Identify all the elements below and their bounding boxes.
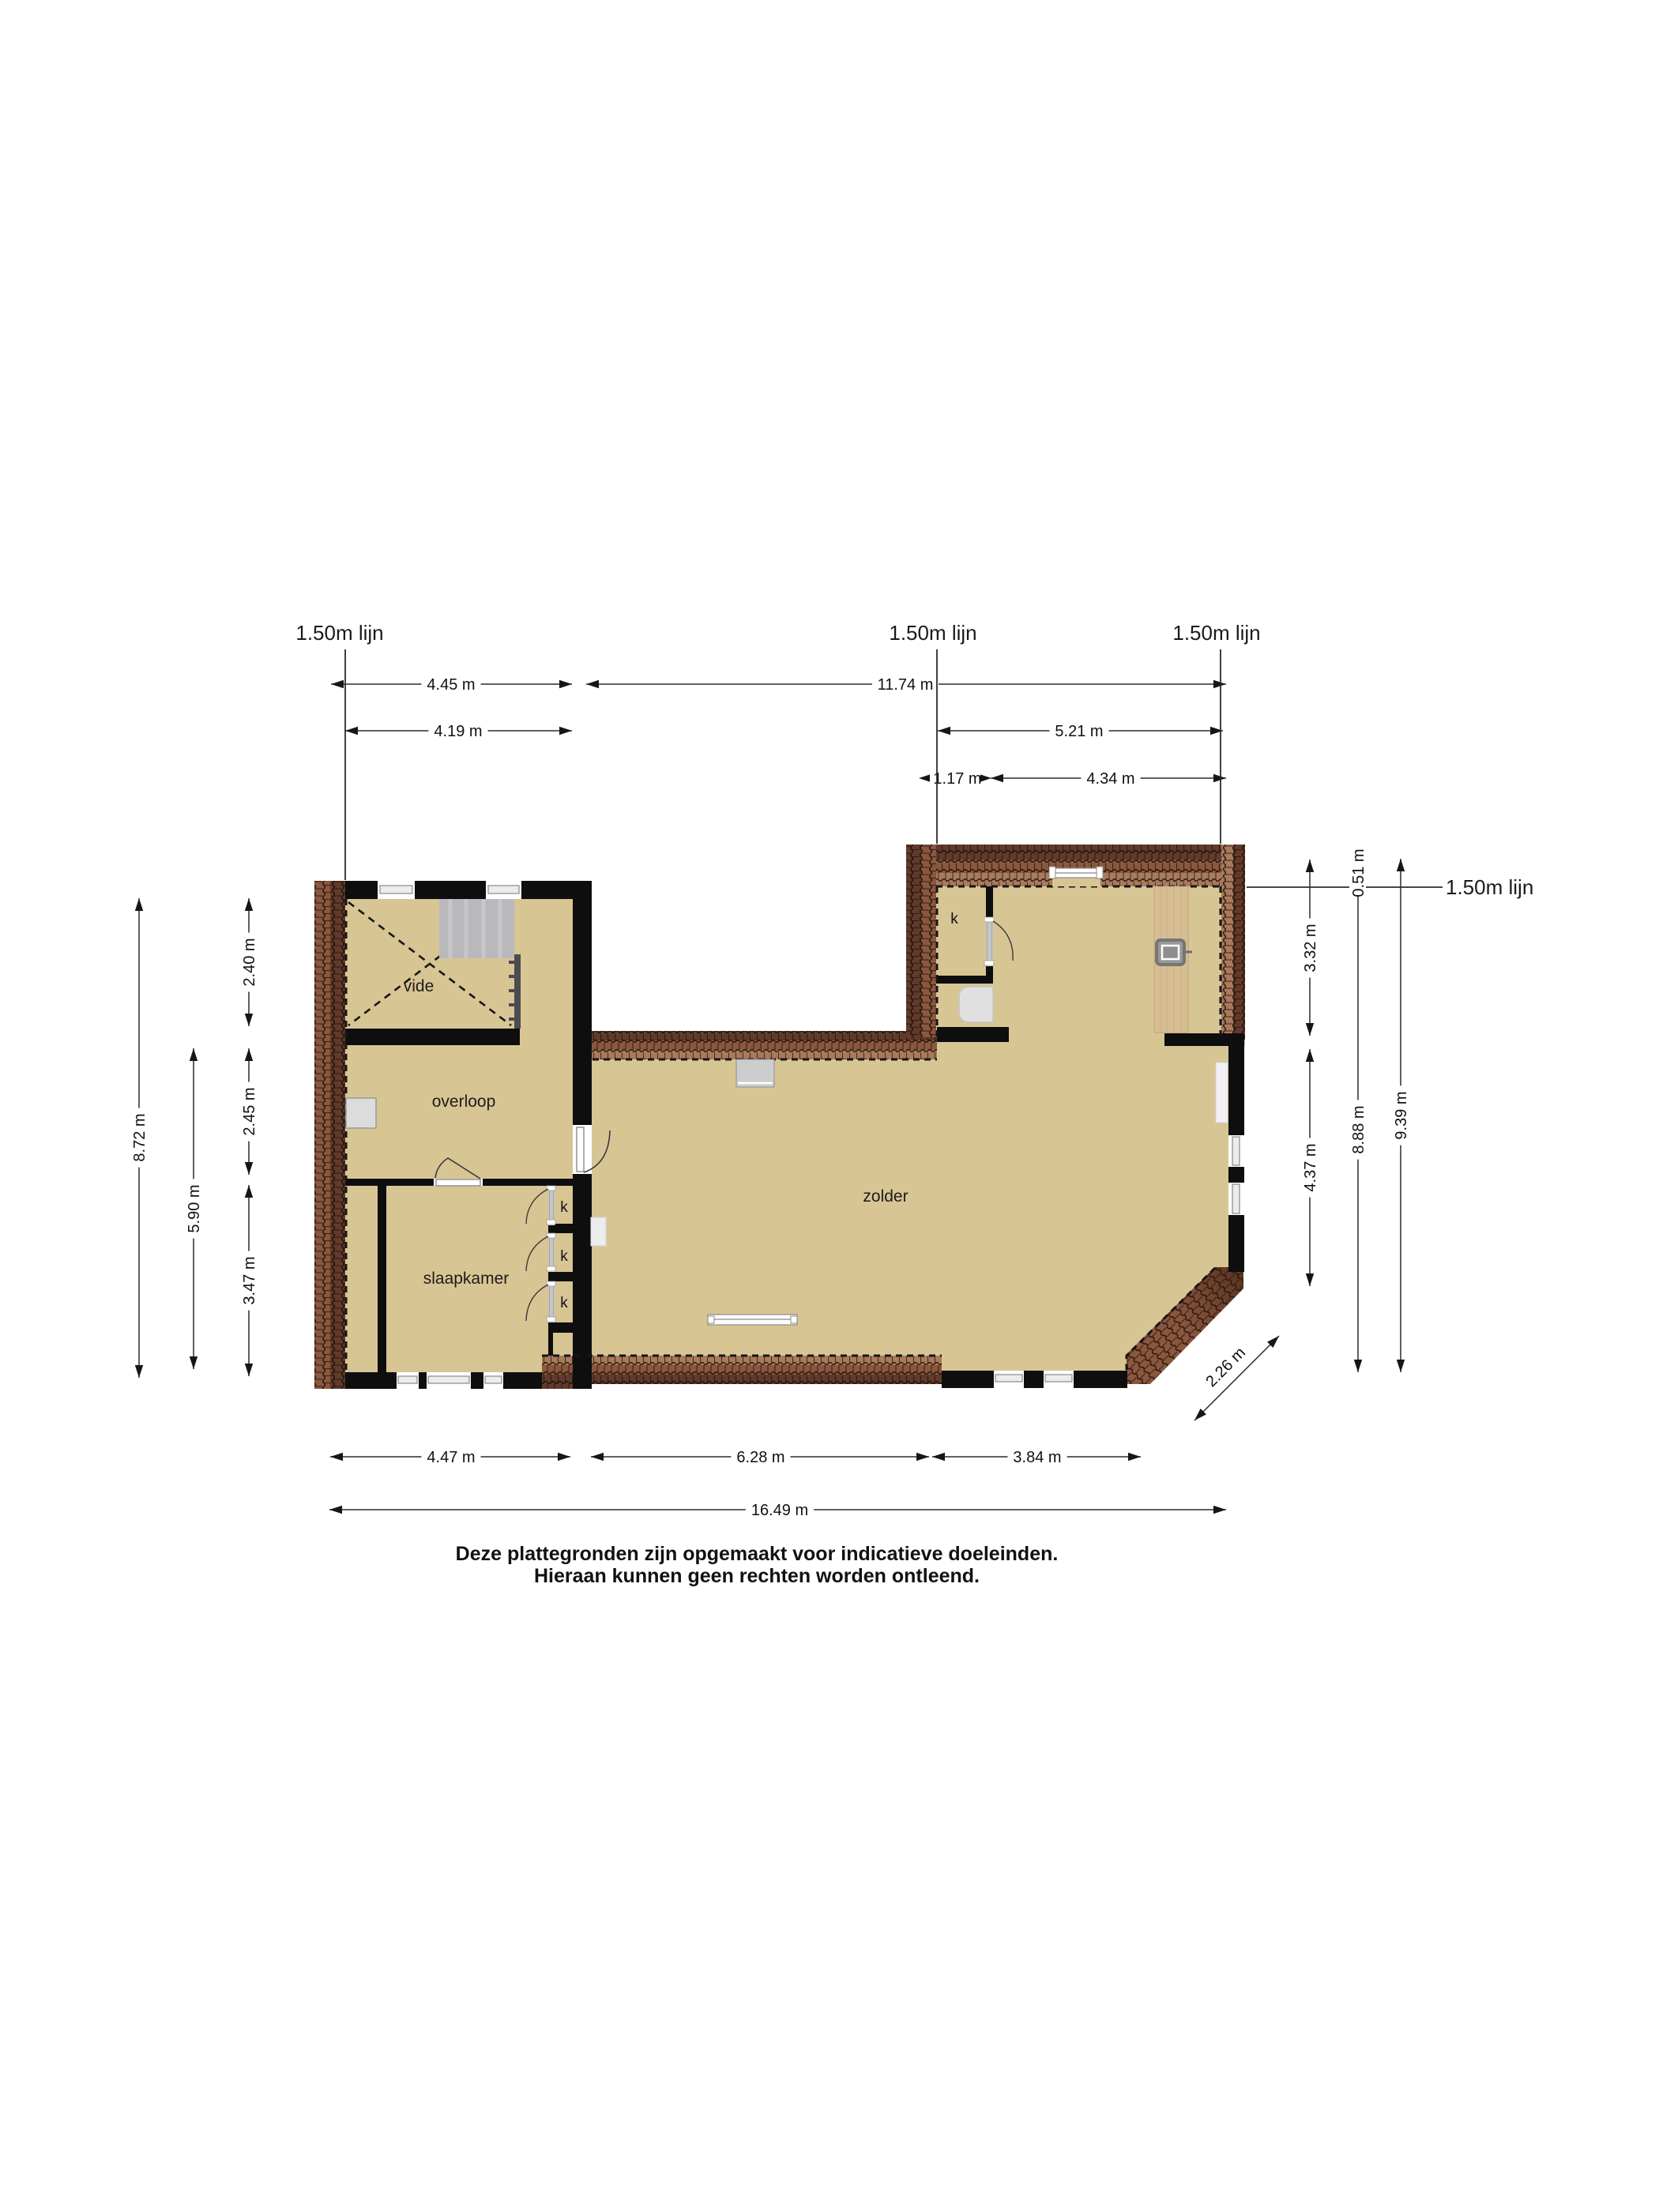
svg-text:1.17 m: 1.17 m <box>933 770 981 788</box>
svg-text:k: k <box>560 1295 568 1311</box>
svg-text:16.49 m: 16.49 m <box>751 1502 808 1519</box>
svg-text:k: k <box>950 911 958 927</box>
svg-text:3.84 m: 3.84 m <box>1013 1449 1061 1466</box>
svg-text:1.50m lijn: 1.50m lijn <box>1446 875 1533 899</box>
svg-text:1.50m lijn: 1.50m lijn <box>1172 621 1260 645</box>
svg-text:8.88 m: 8.88 m <box>1350 1105 1367 1153</box>
svg-text:Hieraan kunnen geen rechten wo: Hieraan kunnen geen rechten worden ontle… <box>534 1565 980 1587</box>
svg-text:vide: vide <box>404 977 434 995</box>
svg-text:k: k <box>560 1199 568 1216</box>
svg-text:2.40 m: 2.40 m <box>241 938 258 986</box>
svg-text:3.32 m: 3.32 m <box>1302 924 1319 972</box>
svg-text:0.51 m: 0.51 m <box>1350 848 1367 897</box>
svg-text:4.37 m: 4.37 m <box>1302 1143 1319 1191</box>
svg-text:8.72 m: 8.72 m <box>131 1113 149 1161</box>
svg-text:4.45 m: 4.45 m <box>427 676 475 694</box>
svg-text:Deze plattegronden zijn opgema: Deze plattegronden zijn opgemaakt voor i… <box>456 1543 1059 1565</box>
svg-text:9.39 m: 9.39 m <box>1393 1091 1410 1139</box>
svg-text:4.34 m: 4.34 m <box>1086 770 1134 788</box>
svg-text:2.45 m: 2.45 m <box>241 1087 258 1135</box>
svg-text:3.47 m: 3.47 m <box>241 1256 258 1304</box>
svg-text:5.90 m: 5.90 m <box>186 1184 203 1232</box>
svg-text:1.50m lijn: 1.50m lijn <box>889 621 976 645</box>
svg-text:1.50m lijn: 1.50m lijn <box>295 621 383 645</box>
svg-text:k: k <box>560 1248 568 1265</box>
svg-text:4.47 m: 4.47 m <box>427 1449 475 1466</box>
svg-text:6.28 m: 6.28 m <box>736 1449 784 1466</box>
svg-text:overloop: overloop <box>432 1093 496 1111</box>
svg-text:11.74 m: 11.74 m <box>878 676 934 694</box>
svg-text:4.19 m: 4.19 m <box>434 723 482 740</box>
svg-text:zolder: zolder <box>863 1187 908 1206</box>
svg-text:5.21 m: 5.21 m <box>1055 723 1103 740</box>
svg-text:slaapkamer: slaapkamer <box>423 1270 510 1288</box>
